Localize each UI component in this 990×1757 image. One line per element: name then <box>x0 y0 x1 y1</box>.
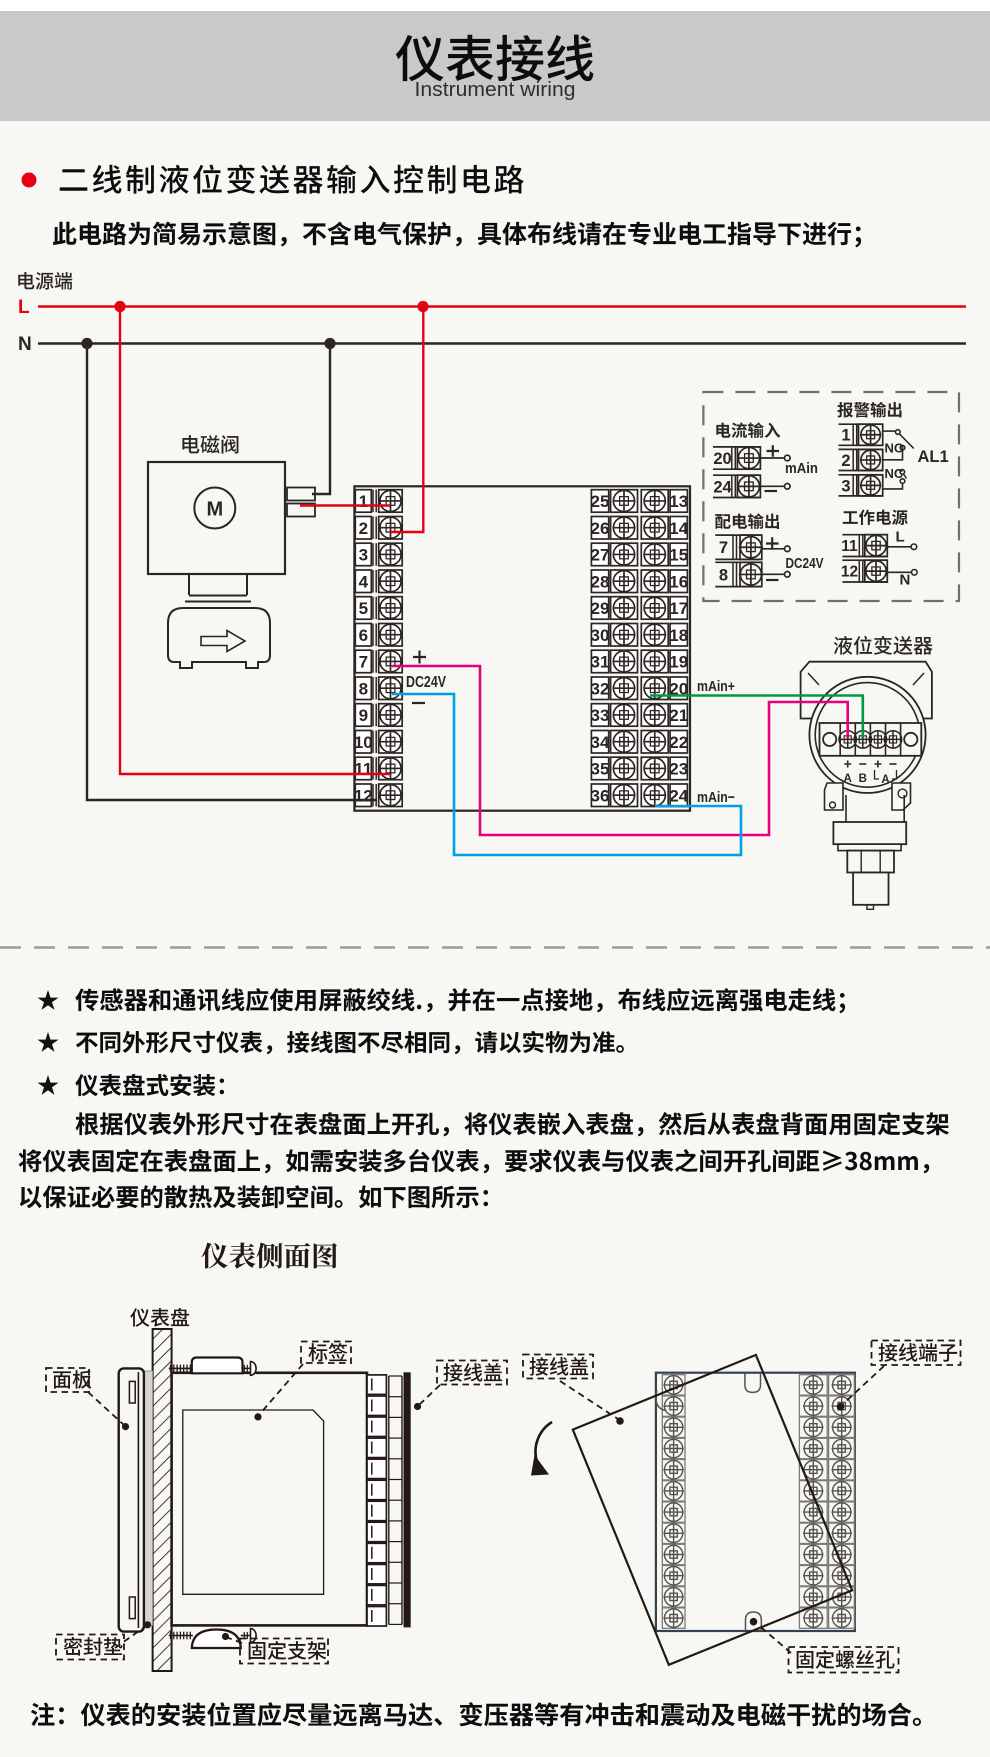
svg-text:AL1: AL1 <box>918 448 949 466</box>
svg-text:29: 29 <box>591 599 610 618</box>
svg-text:L: L <box>896 528 905 545</box>
svg-text:30: 30 <box>591 626 610 645</box>
svg-text:Instrument wiring: Instrument wiring <box>415 78 576 101</box>
svg-text:21: 21 <box>669 706 688 725</box>
svg-text:20: 20 <box>713 450 731 468</box>
svg-text:11: 11 <box>354 760 372 779</box>
svg-text:36: 36 <box>591 786 610 805</box>
svg-text:16: 16 <box>669 572 688 591</box>
svg-text:28: 28 <box>591 572 610 591</box>
svg-text:6: 6 <box>359 626 368 645</box>
svg-text:2: 2 <box>841 452 850 470</box>
svg-text:mAin+: mAin+ <box>697 678 735 695</box>
svg-text:4: 4 <box>359 572 369 591</box>
svg-text:mAin: mAin <box>785 460 818 477</box>
svg-text:A: A <box>881 774 889 786</box>
svg-text:NC: NC <box>885 466 904 481</box>
svg-text:24: 24 <box>669 786 688 805</box>
svg-text:19: 19 <box>669 653 688 672</box>
svg-text:13: 13 <box>669 492 688 511</box>
svg-text:NO: NO <box>885 441 905 456</box>
svg-text:1: 1 <box>841 427 850 445</box>
svg-text:15: 15 <box>669 546 688 565</box>
svg-text:34: 34 <box>591 733 610 752</box>
svg-text:DC24V: DC24V <box>786 555 824 572</box>
svg-text:7: 7 <box>719 539 728 557</box>
svg-text:3: 3 <box>841 477 850 495</box>
svg-text:2: 2 <box>359 519 368 538</box>
svg-text:11: 11 <box>841 538 858 555</box>
svg-text:26: 26 <box>591 519 610 538</box>
svg-text:M: M <box>206 499 223 521</box>
svg-text:23: 23 <box>669 760 688 779</box>
svg-text:33: 33 <box>591 706 610 725</box>
svg-text:3: 3 <box>359 546 368 565</box>
svg-text:12: 12 <box>354 786 373 805</box>
svg-text:22: 22 <box>669 733 688 752</box>
svg-text:DC24V: DC24V <box>406 674 447 691</box>
svg-text:10: 10 <box>354 733 373 752</box>
svg-text:32: 32 <box>591 679 610 698</box>
svg-text:17: 17 <box>669 599 688 618</box>
svg-text:N: N <box>900 572 911 589</box>
svg-text:1: 1 <box>359 492 368 511</box>
svg-text:12: 12 <box>841 564 858 581</box>
svg-text:35: 35 <box>591 760 610 779</box>
svg-text:B: B <box>859 773 867 785</box>
svg-text:8: 8 <box>359 679 368 698</box>
svg-text:18: 18 <box>669 626 688 645</box>
svg-text:mAin−: mAin− <box>697 789 735 806</box>
svg-text:9: 9 <box>359 706 368 725</box>
svg-text:14: 14 <box>669 519 688 538</box>
svg-text:25: 25 <box>591 492 610 511</box>
svg-text:31: 31 <box>591 653 610 672</box>
svg-text:27: 27 <box>591 546 610 565</box>
svg-text:7: 7 <box>359 653 368 672</box>
svg-text:N: N <box>18 334 32 355</box>
svg-text:24: 24 <box>713 478 732 496</box>
svg-text:5: 5 <box>359 599 368 618</box>
svg-text:L: L <box>18 297 30 318</box>
svg-text:A: A <box>844 773 852 785</box>
svg-text:8: 8 <box>719 566 728 584</box>
